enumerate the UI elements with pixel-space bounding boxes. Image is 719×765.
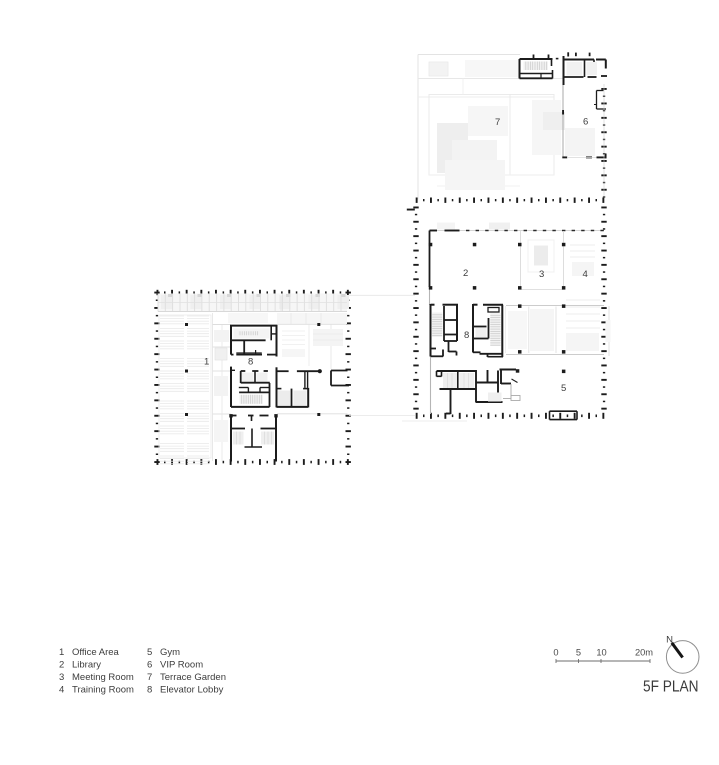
svg-text:1: 1 xyxy=(204,357,209,368)
svg-text:7: 7 xyxy=(147,672,152,683)
svg-text:Terrace Garden: Terrace Garden xyxy=(160,672,226,683)
svg-text:N: N xyxy=(666,635,673,646)
svg-text:8: 8 xyxy=(147,685,152,696)
svg-text:VIP Room: VIP Room xyxy=(160,660,203,671)
svg-text:4: 4 xyxy=(583,269,588,280)
svg-text:2: 2 xyxy=(463,268,468,279)
svg-text:8: 8 xyxy=(248,357,253,368)
svg-text:3: 3 xyxy=(59,672,64,683)
svg-text:7: 7 xyxy=(495,117,500,128)
svg-text:5: 5 xyxy=(561,383,566,394)
svg-text:4: 4 xyxy=(59,685,64,696)
svg-text:1: 1 xyxy=(59,647,64,658)
svg-text:2: 2 xyxy=(59,660,64,671)
svg-text:6: 6 xyxy=(147,660,152,671)
svg-text:Elevator Lobby: Elevator Lobby xyxy=(160,685,224,696)
svg-text:Training Room: Training Room xyxy=(72,685,134,696)
svg-text:Gym: Gym xyxy=(160,647,180,658)
svg-text:20m: 20m xyxy=(635,648,653,658)
svg-text:Office Area: Office Area xyxy=(72,647,120,658)
svg-text:0: 0 xyxy=(553,648,558,658)
svg-text:5F PLAN: 5F PLAN xyxy=(643,679,699,696)
svg-text:3: 3 xyxy=(539,269,544,280)
svg-text:5: 5 xyxy=(147,647,152,658)
svg-text:8: 8 xyxy=(464,330,469,341)
svg-text:6: 6 xyxy=(583,117,588,128)
svg-text:5: 5 xyxy=(576,648,581,658)
svg-text:Library: Library xyxy=(72,660,101,671)
svg-text:10: 10 xyxy=(596,648,606,658)
svg-text:Meeting Room: Meeting Room xyxy=(72,672,134,683)
